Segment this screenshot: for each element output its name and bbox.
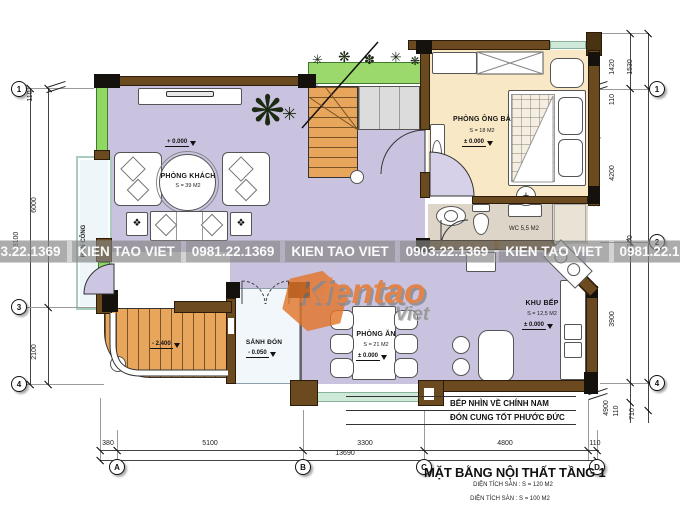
living-room-label: PHÒNG KHÁCH [158, 173, 218, 180]
wall-hall-left-notch [228, 318, 234, 334]
grid-bubble-4-right: 4 [649, 375, 665, 391]
dim-label: 4900 [603, 385, 610, 431]
grid-bubble-4-left: 4 [11, 376, 27, 392]
grid-bubble-3-left: 3 [11, 299, 27, 315]
grid-bubble-b: B [295, 459, 311, 475]
dining-room-area: S = 21 M2 [350, 342, 402, 348]
extension-line [600, 383, 649, 384]
dim-label: 110 [609, 92, 616, 107]
window-glass-left [96, 86, 108, 154]
window-glass-left2 [98, 262, 110, 288]
plan-subtitle-1: DIỆN TÍCH SÀN : S = 120 M2 [448, 482, 578, 488]
wall-mid-vertical-lower [420, 172, 430, 198]
closet [432, 52, 477, 74]
kitchen-note-line1: BẾP NHÌN VỀ CHÍNH NAM [346, 397, 576, 411]
dim-label: 5100 [160, 440, 260, 447]
hall-label: SẢNH ĐÓN [240, 339, 288, 346]
planter-flowers-icon: ✳ [390, 49, 402, 66]
level-flag-icon [174, 343, 180, 348]
living-level-marker: + 0.000 [165, 139, 196, 146]
level-flag-icon [270, 352, 276, 357]
wc-sink-bowl [444, 210, 458, 222]
wc-partition [552, 204, 553, 242]
column [94, 74, 120, 88]
floor-plan: ✳ ❋ ✽ ✳ ❋ ❋ ✳ ❖ ❖ + [0, 0, 680, 512]
planter-flowers-icon: ✽ [364, 52, 375, 68]
hall-level-value: - 0.050 [246, 350, 269, 358]
wall-mid-vertical-upper [420, 50, 430, 130]
level-flag-icon [547, 324, 553, 329]
hall-level-marker: - 0.050 [246, 350, 276, 357]
extension-line [600, 89, 649, 90]
kitchen-sink [564, 324, 582, 340]
interior-stair [308, 86, 358, 178]
dining-chair [330, 358, 354, 378]
grid-bubble-1-left: 1 [11, 81, 27, 97]
side-table: ❖ [230, 212, 252, 236]
wall-left-cap [94, 150, 110, 160]
wall-bedroom-wc [472, 196, 588, 204]
column [586, 286, 598, 298]
dim-total-label: 13690 [320, 450, 370, 457]
kitchen-orientation-note: BẾP NHÌN VỀ CHÍNH NAM ĐÓN CUNG TỐT PHƯỚC… [346, 396, 576, 425]
column [588, 52, 600, 66]
dim-line [100, 460, 599, 461]
planter-flowers-icon: ❋ [338, 48, 351, 66]
dim-line [48, 88, 49, 384]
column [102, 290, 118, 312]
stair-newel [350, 170, 364, 184]
column [588, 186, 600, 204]
exterior-stair-newel [110, 356, 126, 372]
level-flag-icon [381, 355, 387, 360]
master-bedroom-area: S = 18 M2 [456, 128, 508, 134]
dim-label: 3300 [330, 440, 400, 447]
kitchen-level-marker: ± 0.000 [522, 322, 553, 329]
grid-bubble-a: A [109, 459, 125, 475]
dim-label: 1420 [609, 43, 616, 91]
watermark-segment: KIEN TAO VIET [499, 241, 608, 262]
kitchen-level-value: ± 0.000 [522, 322, 546, 330]
column [584, 372, 598, 394]
watermark-segment: KIEN TAO VIET [285, 241, 394, 262]
dining-level-value: ± 0.000 [356, 353, 380, 361]
stool [452, 336, 470, 354]
living-level-value: + 0.000 [165, 139, 189, 147]
planter-flowers-icon: ✳ [312, 52, 323, 68]
master-level-marker: ± 0.000 [462, 139, 493, 146]
watermark-segment: 0981.22.1369 [614, 241, 680, 262]
kitchen-note-line2: ĐÓN CUNG TỐT PHƯỚC ĐỨC [346, 411, 576, 425]
dim-label: 110 [613, 401, 620, 421]
plant-icon: ✳ [282, 104, 297, 125]
kitchen-area: S = 12,5 M2 [516, 311, 568, 317]
living-room-area: S = 39 M2 [163, 183, 213, 189]
column-dining-bl [290, 380, 318, 406]
watermark-segment: 0903.22.1369 [400, 241, 495, 262]
watermark-segment: 0903.22.1369 [0, 241, 67, 262]
level-flag-icon [487, 141, 493, 146]
watermark-logo: Kientao Viet [283, 264, 458, 338]
dim-label: 110 [580, 440, 610, 447]
ext-stair-level-value: - 2.400 [150, 341, 173, 349]
master-bedroom-label: PHÒNG ÔNG BÀ [450, 116, 514, 123]
fridge-island [478, 330, 514, 382]
dim-label: 2100 [31, 327, 38, 377]
dim-label: 4200 [609, 145, 616, 201]
wall-kitchen-right [586, 286, 598, 384]
beam-above-ext-stair [174, 301, 232, 313]
wc-label: WC 5,5 M2 [498, 226, 550, 232]
toilet-tank [472, 204, 490, 212]
watermark-segment: 0981.22.1369 [186, 241, 281, 262]
dim-label: 3900 [609, 291, 616, 347]
kitchen-label: KHU BẾP [512, 300, 572, 307]
stair-landing [358, 86, 420, 130]
dim-label: 4800 [470, 440, 540, 447]
tv-icon [166, 91, 214, 97]
kitchen-sink [564, 342, 582, 358]
shower-area [554, 204, 586, 242]
stool [452, 358, 470, 376]
column [226, 282, 240, 298]
watermark-band: 0903.22.1369 KIEN TAO VIET 0981.22.1369 … [0, 240, 680, 263]
ext-stair-level-marker: - 2.400 [150, 341, 180, 348]
plant-icon: ❋ [250, 86, 285, 135]
grid-bubble-1-right: 1 [649, 81, 665, 97]
pillow [558, 139, 583, 177]
wall-living-top [94, 76, 316, 86]
logo-text-sub: Viet [395, 304, 429, 326]
column [416, 40, 432, 54]
bed-blanket [511, 94, 555, 182]
planter-flowers-icon: ❋ [410, 54, 420, 68]
wall-kitchen-bottom [440, 380, 590, 392]
dim-label: 1530 [627, 41, 634, 93]
extension-line [600, 33, 648, 34]
dim-label: 6000 [31, 177, 38, 233]
dim-label: 710 [629, 397, 636, 431]
column [298, 74, 316, 88]
dining-level-marker: ± 0.000 [356, 353, 387, 360]
armchair-bedroom [550, 58, 584, 88]
wall-bedroom-right [588, 50, 600, 206]
dim-label: 110 [27, 83, 34, 109]
watermark-segment: KIEN TAO VIET [72, 241, 181, 262]
level-flag-icon [190, 141, 196, 146]
pillow [558, 97, 583, 135]
dresser-mirror [432, 140, 442, 168]
plan-title: MẶT BẰNG NỘI THẤT TẦNG 1 [424, 465, 594, 480]
window-bedroom-top [550, 41, 586, 49]
master-level-value: ± 0.000 [462, 139, 486, 147]
plan-subtitle-2: DIỆN TÍCH SÀN : S = 100 M2 [440, 496, 580, 502]
dining-chair [394, 358, 418, 378]
side-table: ❖ [126, 212, 148, 236]
dim-label: 380 [94, 440, 122, 447]
